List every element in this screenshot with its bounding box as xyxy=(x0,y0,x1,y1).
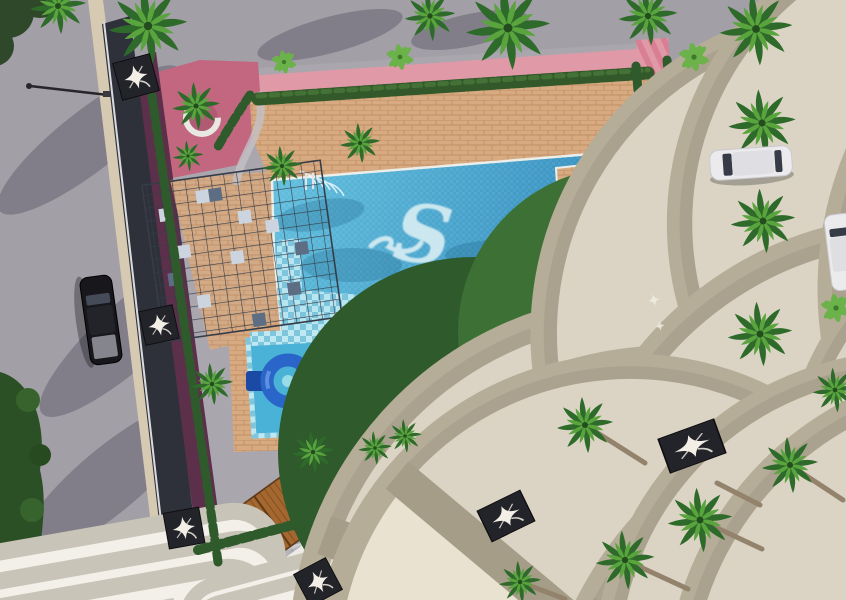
brand-banner xyxy=(163,507,205,549)
brand-banner xyxy=(139,305,180,346)
aerial-resort-render: S xyxy=(0,0,846,600)
scene-canvas: S xyxy=(0,0,846,600)
